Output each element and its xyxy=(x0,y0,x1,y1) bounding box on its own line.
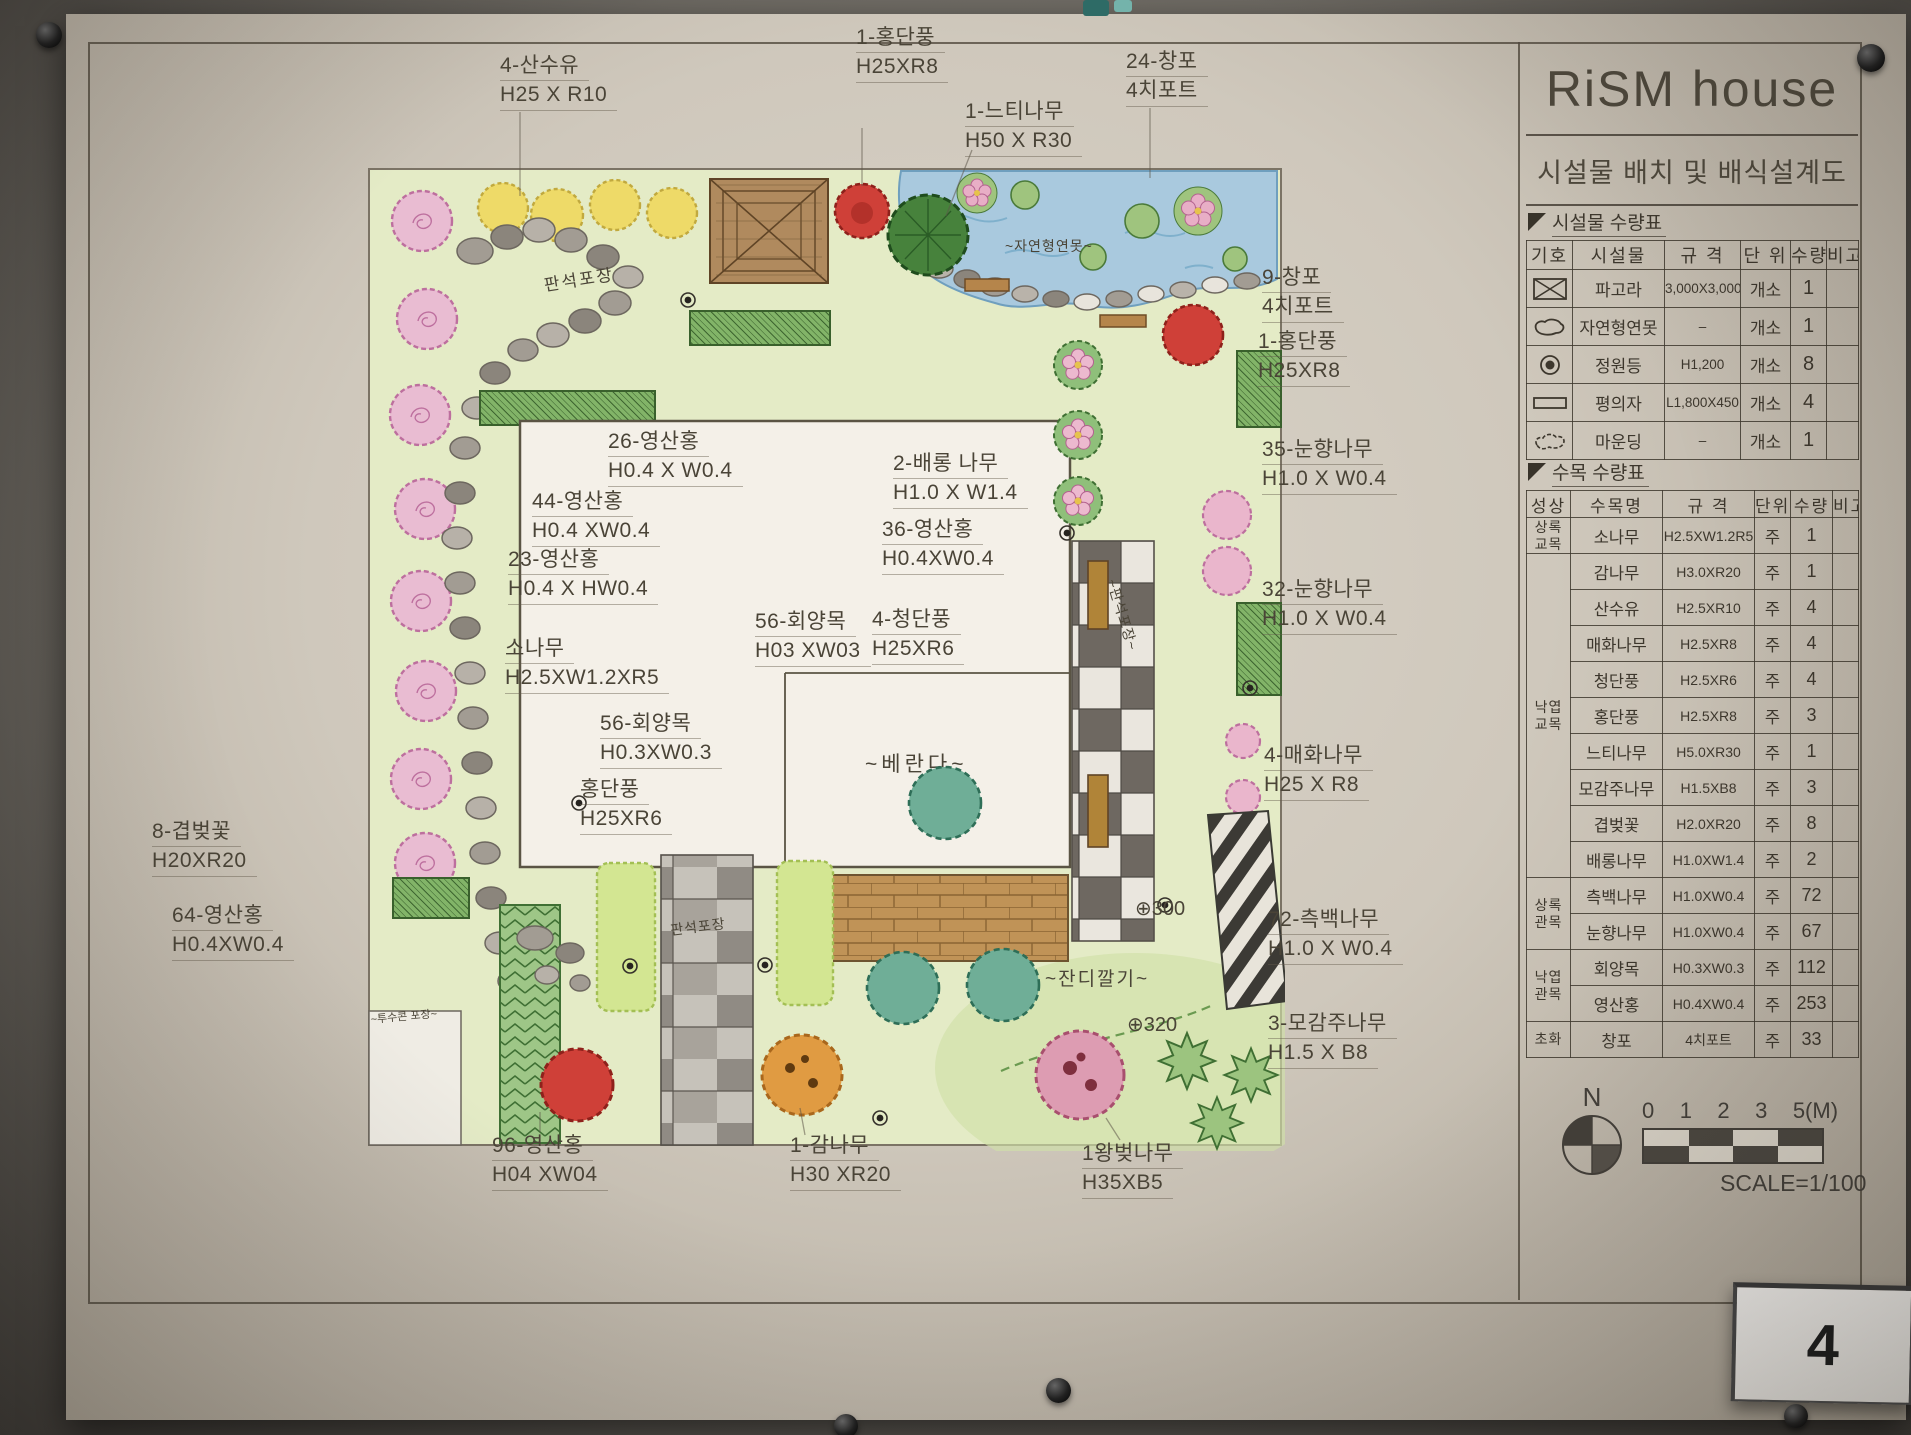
facility-unit: 개소 xyxy=(1741,270,1791,308)
tree-name: 홍단풍 xyxy=(1571,698,1663,734)
magnet-pin xyxy=(36,22,62,48)
tree-unit: 주 xyxy=(1755,878,1791,914)
tree-row: 매화나무H2.5XR8주4 xyxy=(1527,626,1859,662)
tree-table-header: 성상수목명규 격단위수량비고 xyxy=(1527,491,1859,518)
facility-name: 정원등 xyxy=(1573,346,1665,384)
facility-table-header: 기호시설물규 격단 위수량비고 xyxy=(1527,241,1859,270)
plan-label-spec: H0.4 X W0.4 xyxy=(608,457,743,486)
lawn-label: ~잔디깔기~ xyxy=(1045,968,1149,990)
plan-label-gamnamu: 1-감나무H30 XR20 xyxy=(790,1132,901,1191)
tree-size: H2.5XR8 xyxy=(1663,626,1755,662)
plan-label-name: 32-눈향나무 xyxy=(1262,576,1383,605)
tree-row: 청단풍H2.5XR6주4 xyxy=(1527,662,1859,698)
plan-label-name: 26-영산홍 xyxy=(608,428,709,457)
hedge-bar xyxy=(393,878,469,918)
plan-label-name: 96-영산홍 xyxy=(492,1132,593,1161)
plan-label-name: 2-배롱 나무 xyxy=(893,450,1008,479)
tree-note xyxy=(1833,986,1859,1022)
plan-label-spec: H1.5 X B8 xyxy=(1268,1039,1378,1068)
plan-label-name: 35-눈향나무 xyxy=(1262,436,1383,465)
facility-qty: 1 xyxy=(1791,422,1827,460)
plan-label-sonamu: 소나무H2.5XW1.2XR5 xyxy=(505,635,669,694)
tree-name: 눈향나무 xyxy=(1571,914,1663,950)
garden-light-icon-cell xyxy=(1527,346,1573,384)
tree-size: H2.0XR20 xyxy=(1663,806,1755,842)
tree-name: 청단풍 xyxy=(1571,662,1663,698)
tree-row: 배롱나무H1.0XW1.4주2 xyxy=(1527,842,1859,878)
dia-300: ⊕300 xyxy=(1135,898,1185,920)
porous-paving-area xyxy=(369,1011,461,1145)
plan-label-name: 23-영산홍 xyxy=(508,546,609,575)
board-tab xyxy=(1114,0,1132,12)
plan-label-name: 64-영산홍 xyxy=(172,902,273,931)
plan-label-name: 44-영산홍 xyxy=(532,488,633,517)
tree-size: H5.0XR30 xyxy=(1663,734,1755,770)
plan-label-hongdanpung-mid: 홍단풍H25XR6 xyxy=(580,776,672,835)
plan-label-spec: H1.0 X W1.4 xyxy=(893,479,1028,508)
tree-size: 4치포트 xyxy=(1663,1022,1755,1058)
mounding-symbol-icon xyxy=(1532,430,1568,452)
pergola-symbol-icon xyxy=(1532,277,1568,301)
tree-note xyxy=(1833,806,1859,842)
plan-label-yeongsanhong-23: 23-영산홍H0.4 X HW0.4 xyxy=(508,546,658,605)
tree-qty: 1 xyxy=(1791,554,1833,590)
tree-size: H0.3XW0.3 xyxy=(1663,950,1755,986)
tree-name: 소나무 xyxy=(1571,518,1663,554)
tree-qty: 1 xyxy=(1791,518,1833,554)
tree-row: 영산홍H0.4XW0.4주253 xyxy=(1527,986,1859,1022)
plan-label-spec: 4치포트 xyxy=(1262,293,1344,322)
north-label: N xyxy=(1552,1082,1632,1113)
mounding-icon-cell xyxy=(1527,422,1573,460)
plan-label-spec: H2.5XW1.2XR5 xyxy=(505,664,669,693)
tree-category: 상록 관목 xyxy=(1527,878,1571,950)
plan-label-name: 1-느티나무 xyxy=(965,98,1074,127)
tree-qty: 4 xyxy=(1791,590,1833,626)
plan-label-spec: H03 XW03 xyxy=(755,637,871,666)
tree-note xyxy=(1833,698,1859,734)
tree-name: 느티나무 xyxy=(1571,734,1663,770)
tree-row: 홍단풍H2.5XR8주3 xyxy=(1527,698,1859,734)
tree-name: 측백나무 xyxy=(1571,878,1663,914)
plan-label-mogamju: 3-모감주나무H1.5 X B8 xyxy=(1268,1010,1397,1069)
tree-name: 겹벚꽃 xyxy=(1571,806,1663,842)
tree-size: H2.5XR6 xyxy=(1663,662,1755,698)
facility-unit: 개소 xyxy=(1741,346,1791,384)
facility-row: 평의자L1,800X450개소4 xyxy=(1527,384,1859,422)
scale-tick: 1 xyxy=(1680,1098,1718,1124)
plan-label-name: 4-매화나무 xyxy=(1264,742,1373,771)
plan-label-sansuyu: 4-산수유H25 X R10 xyxy=(500,52,617,111)
plan-label-name: 3-모감주나무 xyxy=(1268,1010,1397,1039)
plan-label-spec: H25 X R10 xyxy=(500,81,617,110)
tree-row: 겹벚꽃H2.0XR20주8 xyxy=(1527,806,1859,842)
plan-label-name: 홍단풍 xyxy=(580,776,649,805)
bench xyxy=(1088,775,1108,847)
plan-label-name: 9-창포 xyxy=(1262,264,1331,293)
tree-note xyxy=(1833,1022,1859,1058)
tree-qty: 1 xyxy=(1791,734,1833,770)
tree-category: 상록 교목 xyxy=(1527,518,1571,554)
facility-name: 자연형연못 xyxy=(1573,308,1665,346)
tree-row: 상록 교목소나무H2.5XW1.2R5주1 xyxy=(1527,518,1859,554)
tree-size: H3.0XR20 xyxy=(1663,554,1755,590)
tree-note xyxy=(1833,590,1859,626)
tree-qty: 4 xyxy=(1791,626,1833,662)
tree-row: 산수유H2.5XR10주4 xyxy=(1527,590,1859,626)
plan-label-yeongsanhong-26: 26-영산홍H0.4 X W0.4 xyxy=(608,428,743,487)
plan-label-yeongsanhong-96: 96-영산홍H04 XW04 xyxy=(492,1132,608,1191)
tree-note xyxy=(1833,518,1859,554)
facility-qty: 8 xyxy=(1791,346,1827,384)
tree-size: H2.5XR8 xyxy=(1663,698,1755,734)
page-number: 4 xyxy=(1806,1311,1840,1379)
plan-label-changpo-top: 24-창포4치포트 xyxy=(1126,48,1208,107)
facility-col-header: 규 격 xyxy=(1665,241,1741,270)
persimmon-tree xyxy=(762,1035,842,1115)
facility-unit: 개소 xyxy=(1741,308,1791,346)
tree-col-header: 수목명 xyxy=(1571,491,1663,518)
tree-name: 감나무 xyxy=(1571,554,1663,590)
tree-name: 모감주나무 xyxy=(1571,770,1663,806)
board-tab xyxy=(1083,0,1109,16)
tree-unit: 주 xyxy=(1755,554,1791,590)
tree-note xyxy=(1833,770,1859,806)
plan-label-spec: H30 XR20 xyxy=(790,1161,901,1190)
tree-col-header: 단위 xyxy=(1755,491,1791,518)
tree-unit: 주 xyxy=(1755,950,1791,986)
magnet-pin xyxy=(1857,44,1885,72)
tree-size: H0.4XW0.4 xyxy=(1663,986,1755,1022)
tree-note xyxy=(1833,914,1859,950)
facility-col-header: 비고 xyxy=(1827,241,1859,270)
facility-size: – xyxy=(1665,308,1741,346)
plan-label-yeongsanhong-64: 64-영산홍H0.4XW0.4 xyxy=(172,902,294,961)
compass-icon xyxy=(1560,1113,1624,1177)
plan-label-spec: H1.0 X W0.4 xyxy=(1268,935,1403,964)
facility-table-caption: 시설물 수량표 xyxy=(1528,210,1858,234)
tree-qty: 112 xyxy=(1791,950,1833,986)
plan-label-spec: H25 X R8 xyxy=(1264,771,1369,800)
tree-category: 낙엽 관목 xyxy=(1527,950,1571,1022)
scale-tick: 3 xyxy=(1755,1098,1793,1124)
tree-size: H1.0XW1.4 xyxy=(1663,842,1755,878)
tree-note xyxy=(1833,950,1859,986)
red-maple-core xyxy=(851,202,873,224)
red-maple-tree xyxy=(1163,305,1223,365)
tree-unit: 주 xyxy=(1755,734,1791,770)
tree-category: 낙엽 교목 xyxy=(1527,554,1571,878)
north-arrow: N xyxy=(1552,1082,1632,1186)
facility-size: H1,200 xyxy=(1665,346,1741,384)
facility-row: 파고라3,000X3,000개소1 xyxy=(1527,270,1859,308)
tree-qty: 72 xyxy=(1791,878,1833,914)
tree-row: 낙엽 교목감나무H3.0XR20주1 xyxy=(1527,554,1859,590)
tree-name: 매화나무 xyxy=(1571,626,1663,662)
tree-unit: 주 xyxy=(1755,518,1791,554)
pond-label: ~자연형연못~ xyxy=(1005,238,1093,254)
plan-label-spec: H0.4 X HW0.4 xyxy=(508,575,658,604)
tree-quantity-table: 성상수목명규 격단위수량비고 상록 교목소나무H2.5XW1.2R5주1낙엽 교… xyxy=(1526,490,1859,1058)
plan-label-name: 72-측백나무 xyxy=(1268,906,1389,935)
tree-size: H1.0XW0.4 xyxy=(1663,914,1755,950)
caption-triangle-icon xyxy=(1528,463,1546,481)
plum-tree xyxy=(1054,411,1102,459)
tree-unit: 주 xyxy=(1755,806,1791,842)
plan-label-name: 1-홍단풍 xyxy=(1258,328,1347,357)
tree-table-caption: 수목 수량표 xyxy=(1528,460,1858,484)
facility-qty: 1 xyxy=(1791,308,1827,346)
plan-label-spec: H04 XW04 xyxy=(492,1161,608,1190)
facility-note xyxy=(1827,270,1859,308)
plan-label-hongdanpung-top: 1-홍단풍H25XR8 xyxy=(856,24,948,83)
tree-size: H1.5XB8 xyxy=(1663,770,1755,806)
plan-label-name: 36-영산홍 xyxy=(882,516,983,545)
plan-label-name: 4-산수유 xyxy=(500,52,589,81)
tree-note xyxy=(1833,734,1859,770)
plan-label-hoeyangmok-56a: 56-회양목H03 XW03 xyxy=(755,608,871,667)
tree-unit: 주 xyxy=(1755,698,1791,734)
tree-col-header: 성상 xyxy=(1527,491,1571,518)
plan-label-spec: H35XB5 xyxy=(1082,1169,1173,1198)
facility-quantity-table: 기호시설물규 격단 위수량비고 파고라3,000X3,000개소1자연형연못–개… xyxy=(1526,240,1859,460)
tree-qty: 253 xyxy=(1791,986,1833,1022)
plan-label-hongdanpung-right: 1-홍단풍H25XR8 xyxy=(1258,328,1350,387)
facility-note xyxy=(1827,346,1859,384)
bench xyxy=(965,279,1009,291)
tree-col-header: 비고 xyxy=(1833,491,1859,518)
plan-label-spec: H25XR8 xyxy=(1258,357,1350,386)
tree-size: H2.5XW1.2R5 xyxy=(1663,518,1755,554)
plan-label-name: 1왕벚나무 xyxy=(1082,1140,1183,1169)
tree-name: 배롱나무 xyxy=(1571,842,1663,878)
tree-unit: 주 xyxy=(1755,770,1791,806)
subtitle-block: 시설물 배치 및 배식설계도 xyxy=(1526,136,1858,206)
facility-name: 파고라 xyxy=(1573,270,1665,308)
tree-qty: 2 xyxy=(1791,842,1833,878)
bench-symbol-icon xyxy=(1532,395,1568,411)
block-path xyxy=(661,855,753,1145)
tree-qty: 3 xyxy=(1791,770,1833,806)
plan-label-spec: H25XR6 xyxy=(872,635,964,664)
plan-label-name: 1-홍단풍 xyxy=(856,24,945,53)
magnet-pin xyxy=(834,1414,858,1435)
pergola-icon-cell xyxy=(1527,270,1573,308)
column-divider xyxy=(1518,42,1520,1300)
plan-label-name: 4-청단풍 xyxy=(872,606,961,635)
plan-label-yeongsanhong-36: 36-영산홍H0.4XW0.4 xyxy=(882,516,1004,575)
magnet-pin xyxy=(1784,1404,1808,1428)
tree-col-header: 수량 xyxy=(1791,491,1833,518)
tree-name: 창포 xyxy=(1571,1022,1663,1058)
plan-label-neutinamu: 1-느티나무H50 X R30 xyxy=(965,98,1082,157)
tree-note xyxy=(1833,554,1859,590)
tree-qty: 33 xyxy=(1791,1022,1833,1058)
plan-label-name: 24-창포 xyxy=(1126,48,1208,77)
tree-category: 초화 xyxy=(1527,1022,1571,1058)
magnet-pin xyxy=(1046,1378,1071,1403)
plan-label-spec: H0.3XW0.3 xyxy=(600,739,722,768)
tree-unit: 주 xyxy=(1755,626,1791,662)
plan-label-spec: H0.4 XW0.4 xyxy=(532,517,660,546)
facility-note xyxy=(1827,308,1859,346)
plan-label-spec: H50 X R30 xyxy=(965,127,1082,156)
plan-label-name: 56-회양목 xyxy=(755,608,856,637)
pond-symbol-icon xyxy=(1532,316,1568,338)
plan-label-spec: H1.0 X W0.4 xyxy=(1262,465,1397,494)
tree-size: H1.0XW0.4 xyxy=(1663,878,1755,914)
facility-row: 자연형연못–개소1 xyxy=(1527,308,1859,346)
page-subtitle: 시설물 배치 및 배식설계도 xyxy=(1537,151,1847,190)
plan-label-yeongsanhong-44: 44-영산홍H0.4 XW0.4 xyxy=(532,488,660,547)
tree-qty: 3 xyxy=(1791,698,1833,734)
plan-label-spec: 4치포트 xyxy=(1126,77,1208,106)
hedge-bar xyxy=(690,311,830,345)
pergola xyxy=(710,179,828,283)
facility-unit: 개소 xyxy=(1741,422,1791,460)
plum-tree xyxy=(1054,341,1102,389)
dia-320: ⊕320 xyxy=(1127,1014,1177,1036)
facility-note xyxy=(1827,384,1859,422)
plan-label-spec: H25XR8 xyxy=(856,53,948,82)
facility-row: 마운딩–개소1 xyxy=(1527,422,1859,460)
facility-size: – xyxy=(1665,422,1741,460)
tree-size: H2.5XR10 xyxy=(1663,590,1755,626)
page-title: RiSM house xyxy=(1546,60,1838,118)
brick-patio xyxy=(830,875,1068,961)
tree-qty: 4 xyxy=(1791,662,1833,698)
bench-icon-cell xyxy=(1527,384,1573,422)
tree-name: 회양목 xyxy=(1571,950,1663,986)
facility-qty: 1 xyxy=(1791,270,1827,308)
tree-unit: 주 xyxy=(1755,986,1791,1022)
tree-note xyxy=(1833,842,1859,878)
tree-row: 모감주나무H1.5XB8주3 xyxy=(1527,770,1859,806)
tree-qty: 8 xyxy=(1791,806,1833,842)
plan-label-cheukbaek: 72-측백나무H1.0 X W0.4 xyxy=(1268,906,1403,965)
facility-col-header: 수량 xyxy=(1791,241,1827,270)
plan-label-maehwa: 4-매화나무H25 X R8 xyxy=(1264,742,1373,801)
facility-name: 마운딩 xyxy=(1573,422,1665,460)
tree-unit: 주 xyxy=(1755,590,1791,626)
plan-label-cheongdanpung: 4-청단풍H25XR6 xyxy=(872,606,964,665)
scale-ticks: 0 1 2 3 5(M) xyxy=(1642,1098,1838,1124)
tree-note xyxy=(1833,662,1859,698)
plan-label-nunhyang-32: 32-눈향나무H1.0 X W0.4 xyxy=(1262,576,1397,635)
scale-tick: 0 xyxy=(1642,1098,1680,1124)
tree-row: 상록 관목측백나무H1.0XW0.4주72 xyxy=(1527,878,1859,914)
facility-size: L1,800X450 xyxy=(1665,384,1741,422)
scale-bar: 0 1 2 3 5(M) SCALE=1/100 xyxy=(1642,1098,1838,1197)
plan-label-spec: H1.0 X W0.4 xyxy=(1262,605,1397,634)
garden-light-symbol-icon xyxy=(1538,353,1562,377)
facility-note xyxy=(1827,422,1859,460)
tree-note xyxy=(1833,626,1859,662)
tree-unit: 주 xyxy=(1755,914,1791,950)
bench xyxy=(1100,315,1146,327)
bench xyxy=(1088,561,1108,629)
zelkova-tree xyxy=(888,195,968,275)
scale-label: SCALE=1/100 xyxy=(1720,1170,1838,1197)
plan-label-spec: H0.4XW0.4 xyxy=(172,931,294,960)
facility-qty: 4 xyxy=(1791,384,1827,422)
facility-row: 정원등H1,200개소8 xyxy=(1527,346,1859,384)
tree-name: 영산홍 xyxy=(1571,986,1663,1022)
facility-name: 평의자 xyxy=(1573,384,1665,422)
plan-label-gyeopbeotkkot: 8-겹벚꽃H20XR20 xyxy=(152,818,257,877)
tree-row: 느티나무H5.0XR30주1 xyxy=(1527,734,1859,770)
plan-label-hoeyangmok-56b: 56-회양목H0.3XW0.3 xyxy=(600,710,722,769)
tree-row: 초화창포4치포트주33 xyxy=(1527,1022,1859,1058)
scale-tick: 5(M) xyxy=(1793,1098,1838,1124)
tree-note xyxy=(1833,878,1859,914)
facility-unit: 개소 xyxy=(1741,384,1791,422)
facility-col-header: 단 위 xyxy=(1741,241,1791,270)
cherry-blossom-tree xyxy=(1036,1031,1124,1119)
page-number-card: 4 xyxy=(1731,1282,1911,1405)
tree-unit: 주 xyxy=(1755,662,1791,698)
natural-pond-icon-cell xyxy=(1527,308,1573,346)
tree-row: 눈향나무H1.0XW0.4주67 xyxy=(1527,914,1859,950)
tree-unit: 주 xyxy=(1755,842,1791,878)
caption-triangle-icon xyxy=(1528,213,1546,231)
facility-size: 3,000X3,000 xyxy=(1665,270,1741,308)
tree-name: 산수유 xyxy=(1571,590,1663,626)
tree-qty: 67 xyxy=(1791,914,1833,950)
tree-row: 낙엽 관목회양목H0.3XW0.3주112 xyxy=(1527,950,1859,986)
plan-label-name: 8-겹벚꽃 xyxy=(152,818,241,847)
plan-label-changpo-right: 9-창포4치포트 xyxy=(1262,264,1344,323)
plan-label-wangbeotnamu: 1왕벚나무H35XB5 xyxy=(1082,1140,1183,1199)
title-block: RiSM house xyxy=(1526,44,1858,136)
tree-col-header: 규 격 xyxy=(1663,491,1755,518)
tree-unit: 주 xyxy=(1755,1022,1791,1058)
facility-col-header: 기호 xyxy=(1527,241,1573,270)
plan-label-spec: H0.4XW0.4 xyxy=(882,545,1004,574)
plan-label-name: 소나무 xyxy=(505,635,574,664)
plan-label-baerongnamu: 2-배롱 나무H1.0 X W1.4 xyxy=(893,450,1028,509)
red-azalea-tree xyxy=(541,1049,613,1121)
plan-label-name: 1-감나무 xyxy=(790,1132,879,1161)
plan-label-nunhyang-35: 35-눈향나무H1.0 X W0.4 xyxy=(1262,436,1397,495)
scale-bar-graphic xyxy=(1642,1128,1824,1164)
plan-label-spec: H20XR20 xyxy=(152,847,257,876)
plan-label-spec: H25XR6 xyxy=(580,805,672,834)
plum-tree xyxy=(1054,477,1102,525)
facility-col-header: 시설물 xyxy=(1573,241,1665,270)
scale-tick: 2 xyxy=(1717,1098,1755,1124)
photo-board: ~자연형연못~ xyxy=(0,0,1911,1435)
plan-label-name: 56-회양목 xyxy=(600,710,701,739)
